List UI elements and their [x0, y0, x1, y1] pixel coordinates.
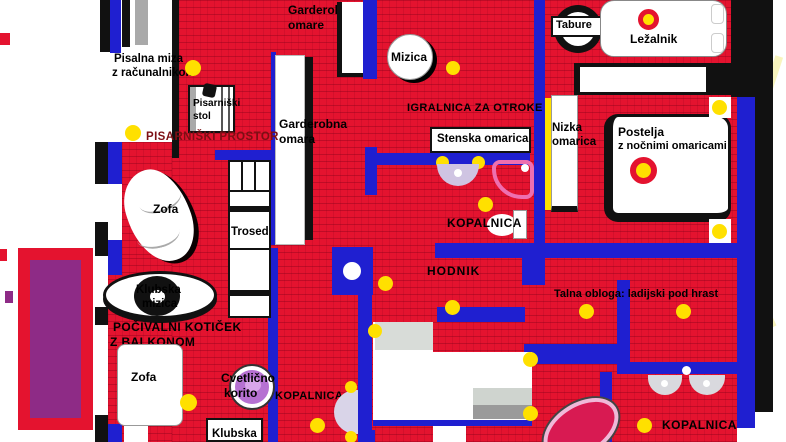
wardrobe-left-edge [305, 57, 313, 240]
light-dot [676, 304, 691, 319]
lounger-label: Ležalnik [630, 33, 677, 46]
lounger-pillow [711, 4, 724, 24]
wardrobe-left-label: omara [279, 133, 315, 146]
wall-segment [534, 0, 545, 258]
sofa-line [241, 162, 243, 190]
desk-computer [135, 0, 148, 45]
lounger-pillow [711, 33, 724, 53]
room-label-rest-corner: POČIVALNI KOTIČEK [113, 321, 242, 334]
club-table-label: mizica [142, 298, 177, 310]
light-dot [637, 418, 652, 433]
wall-segment [108, 240, 122, 275]
light-dot [185, 60, 201, 76]
lounger [600, 0, 727, 57]
club-table-bottom-label: Klubska [212, 428, 257, 440]
sofa-bottom-label: Zofa [131, 371, 156, 384]
wall-bottom-right-patch [737, 428, 786, 442]
floor-plan: Pisalna miza z računalnikom Pisarniški s… [0, 0, 786, 442]
wardrobe-left-label: Garderobna [279, 118, 347, 131]
bed-light-dot [630, 157, 657, 184]
entry-gap [433, 426, 466, 442]
wardrobe-left-body [275, 55, 305, 245]
shower-head-dot [521, 164, 529, 172]
wall-segment [358, 294, 372, 442]
sofa-line [230, 190, 269, 192]
sofa-top-label: Zofa [153, 203, 178, 216]
wardrobe-top-body [337, 2, 363, 77]
bed-label: Postelja [618, 126, 664, 139]
wall-hallway-top [435, 243, 750, 258]
bedroom-window [580, 67, 706, 92]
door-dot [368, 324, 382, 338]
scan-mark [5, 291, 13, 303]
room-label-office: PISARNIŠKI PROSTOR [146, 131, 279, 143]
door-dot [345, 381, 357, 393]
low-cabinet-label: omarica [552, 136, 596, 148]
sofa-bottom-foot [124, 426, 148, 442]
light-dot [579, 304, 594, 319]
office-chair-label: Pisarniški [193, 99, 240, 110]
light-dot [378, 276, 393, 291]
wall-segment [95, 222, 108, 256]
sofa-line [230, 248, 269, 250]
light-dot [310, 418, 325, 433]
room-label-playroom: IGRALNICA ZA OTROKE [407, 103, 543, 115]
light-dot [445, 300, 460, 315]
door-dot [345, 431, 357, 442]
bed-label: z nočnimi omaricami [618, 141, 727, 153]
light-dot [180, 394, 197, 411]
floor-note: Talna obloga: ladijski pod hrast [554, 289, 718, 301]
wardrobe-top-label: omare [288, 19, 324, 32]
light-dot [125, 125, 141, 141]
basin-drain-dot [703, 380, 710, 387]
desk-label: Pisalna miza [114, 53, 183, 65]
club-table-label: Klubska [136, 284, 181, 296]
planter-label: korito [224, 387, 257, 400]
office-chair-knob [202, 83, 217, 98]
side-table-label: Mizica [391, 51, 427, 64]
sofa-line [254, 162, 256, 190]
stool-label: Tabure [556, 20, 592, 32]
basin-drain-dot [661, 380, 668, 387]
scan-mark [0, 249, 7, 261]
wall-segment [95, 307, 108, 325]
wall-segment [95, 142, 108, 184]
sofa-line [230, 206, 269, 212]
desk-label: z računalnikom [112, 67, 196, 79]
wall-cabinet-label: Stenska omarica [437, 133, 528, 145]
balcony-floor [30, 260, 81, 418]
wall-segment [365, 147, 377, 195]
scan-mark [0, 33, 10, 45]
room-label-bathroom-right: KOPALNICA [662, 419, 737, 432]
wall-segment [363, 0, 377, 79]
office-chair-label: stol [193, 112, 211, 123]
sofa-line [230, 290, 269, 296]
sofa-bottom [117, 344, 183, 426]
wall-segment [108, 142, 122, 184]
entry-mat [375, 322, 433, 350]
low-cabinet [551, 95, 578, 212]
wall-segment [108, 424, 122, 442]
light-dot [478, 197, 493, 212]
door-dot [523, 352, 538, 367]
nightstand-dot [712, 224, 727, 239]
entry-step-light [473, 388, 532, 405]
room-label-hallway: HODNIK [427, 265, 480, 278]
wall-segment [363, 430, 375, 442]
wall-segment [95, 415, 108, 442]
three-seat-sofa-label: Trosed [231, 226, 269, 238]
wall-segment [524, 344, 617, 364]
low-cabinet-label: Nizka [552, 122, 582, 134]
desk-edge [122, 0, 130, 47]
wall-segment [522, 258, 545, 285]
lounger-light-dot [638, 9, 659, 30]
room-label-bathroom-top: KOPALNICA [447, 217, 522, 230]
nightstand-dot [712, 100, 727, 115]
light-dot [446, 61, 460, 75]
wall-segment [110, 0, 121, 53]
wall-right-black [755, 0, 773, 412]
wall-segment [100, 0, 110, 52]
door-dot [523, 406, 538, 421]
wall-segment [215, 150, 272, 160]
room-label-bathroom-bottom: KOPALNICA [275, 391, 343, 403]
tap-dot [682, 366, 691, 375]
planter-label: Cvetlično [221, 372, 275, 385]
column-dot [343, 262, 361, 280]
basin-drain-dot [454, 169, 462, 177]
